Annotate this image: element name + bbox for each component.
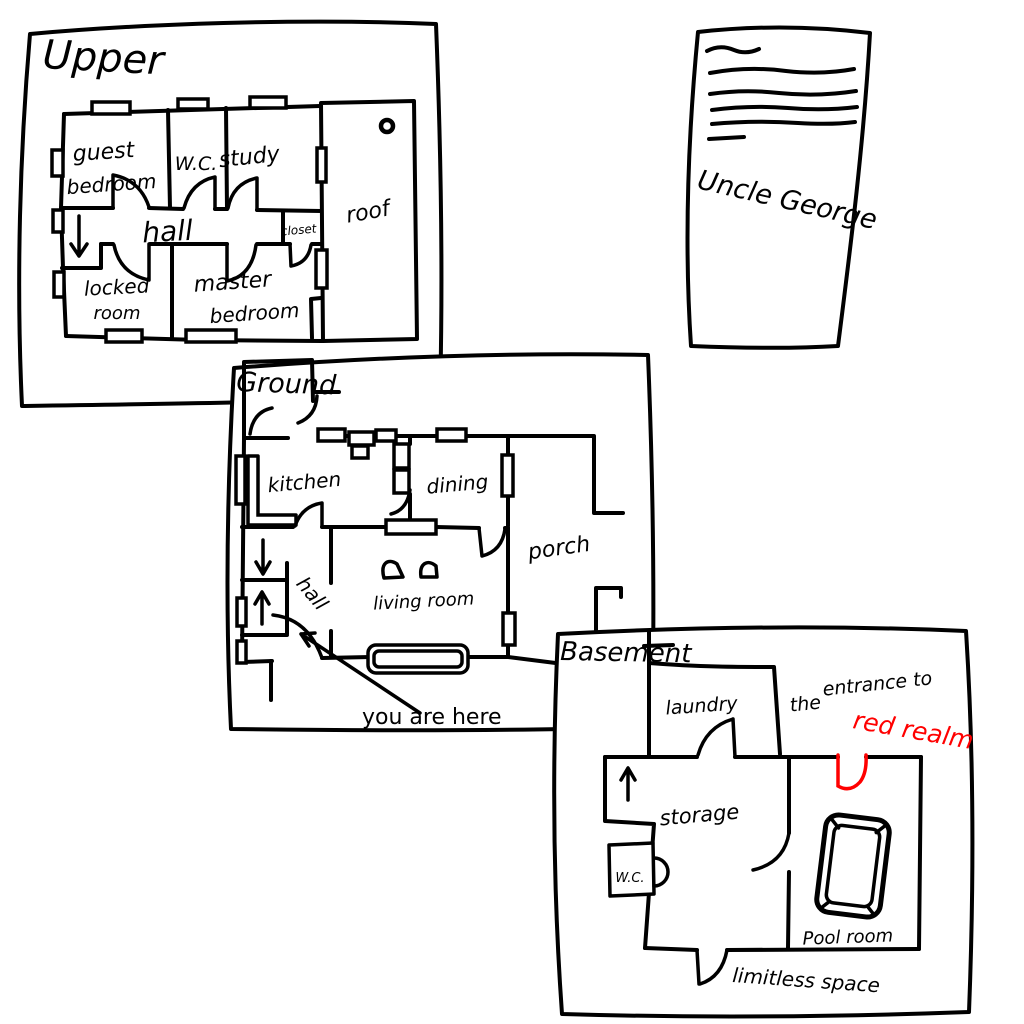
- counter-appliance: [349, 432, 374, 445]
- room-label-guest: guest: [72, 138, 136, 167]
- window: [237, 598, 246, 626]
- fridge: [394, 470, 409, 493]
- room-label-pool-room: Pool room: [802, 925, 893, 949]
- you-are-here-label: you are here: [362, 705, 502, 730]
- window: [53, 210, 63, 232]
- window: [386, 520, 436, 534]
- counter-appliance: [376, 430, 396, 441]
- window: [502, 455, 513, 496]
- window: [250, 97, 286, 108]
- window: [106, 330, 142, 342]
- note-paper: Uncle George: [687, 28, 880, 348]
- room-label-hall: hall: [141, 214, 193, 250]
- sketch-canvas: Upper guest bedroom W.C. study hall clos…: [0, 0, 1024, 1024]
- window: [178, 99, 208, 109]
- pool-table-icon: [815, 813, 890, 918]
- floor-label: Upper: [41, 32, 167, 84]
- floor-label: Ground: [236, 367, 338, 401]
- window: [316, 250, 327, 288]
- wc-walls: [609, 843, 654, 896]
- entrance-note-line2: the: [789, 691, 822, 716]
- room-label-wc: W.C.: [615, 871, 644, 886]
- counter-appliance: [352, 446, 368, 458]
- room-label-wc: W.C.: [175, 153, 218, 175]
- fridge: [394, 444, 409, 468]
- window: [52, 150, 63, 176]
- window: [503, 613, 515, 645]
- chair-icon: [421, 563, 437, 577]
- room-label-locked-2: room: [94, 303, 141, 324]
- window-seat-icon: [368, 645, 468, 673]
- counter-appliance: [318, 429, 345, 441]
- window: [92, 102, 130, 114]
- room-label-locked: locked: [83, 273, 150, 300]
- window: [186, 330, 236, 342]
- window: [237, 641, 246, 663]
- window: [236, 456, 245, 504]
- window: [54, 272, 64, 297]
- basement-paper: Basement laundry entrance to the red rea…: [554, 627, 976, 1016]
- upper-floor-paper: Upper guest bedroom W.C. study hall clos…: [19, 22, 441, 406]
- window: [437, 429, 466, 441]
- floor-plan-sketch: Upper guest bedroom W.C. study hall clos…: [0, 0, 1024, 1024]
- floor-label: Basement: [560, 637, 693, 669]
- window: [317, 148, 326, 182]
